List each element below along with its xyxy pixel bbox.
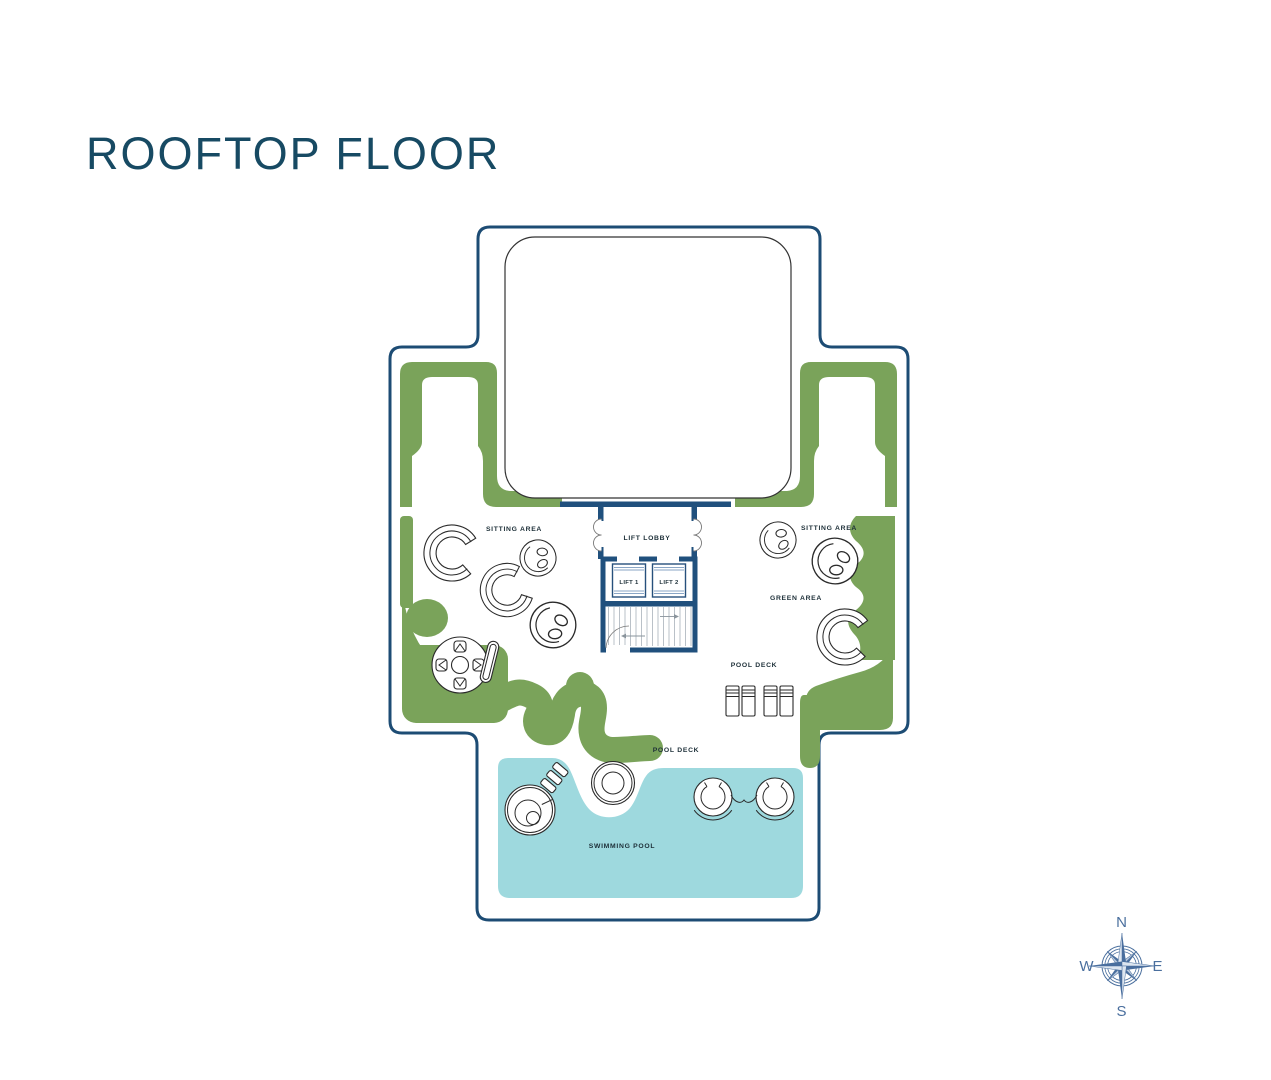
sun-lounger [742,686,755,716]
lift-1-label: LIFT 1 [619,580,639,586]
rooftop-floor-plan-page: ROOFTOP FLOOR [0,0,1271,1080]
sitting-area-left-label: SITTING AREA [486,526,542,533]
swimming-pool: SWIMMING POOL [498,758,803,898]
green-area-label: GREEN AREA [770,595,822,602]
pool-deck-upper-label: POOL DECK [731,662,778,669]
lift-2: LIFT 2 [653,564,686,597]
sun-lounger [726,686,739,716]
swimming-pool-label: SWIMMING POOL [589,843,656,850]
sitting-area-right-label: SITTING AREA [801,525,857,532]
sun-lounger [764,686,777,716]
lift-lobby-label: LIFT LOBBY [623,535,670,542]
floor-plan-canvas: LIFT LOBBY LIFT 1 [0,0,1271,1080]
pool-side-table [592,762,635,805]
tower-block [505,237,791,498]
compass-west-label: W [1079,958,1094,975]
sun-lounger [780,686,793,716]
compass-cardinal-points [1089,933,1155,999]
compass-north-label: N [1116,914,1128,931]
lift-core: LIFT 1 LIFT 2 [601,555,698,653]
lift-2-label: LIFT 2 [659,580,679,586]
compass-south-label: S [1116,1003,1127,1020]
compass-east-label: E [1152,958,1163,975]
lift-1: LIFT 1 [613,564,646,597]
pool-deck-lower-label: POOL DECK [653,747,700,754]
compass-rose-icon: N E S W [1079,914,1163,1020]
